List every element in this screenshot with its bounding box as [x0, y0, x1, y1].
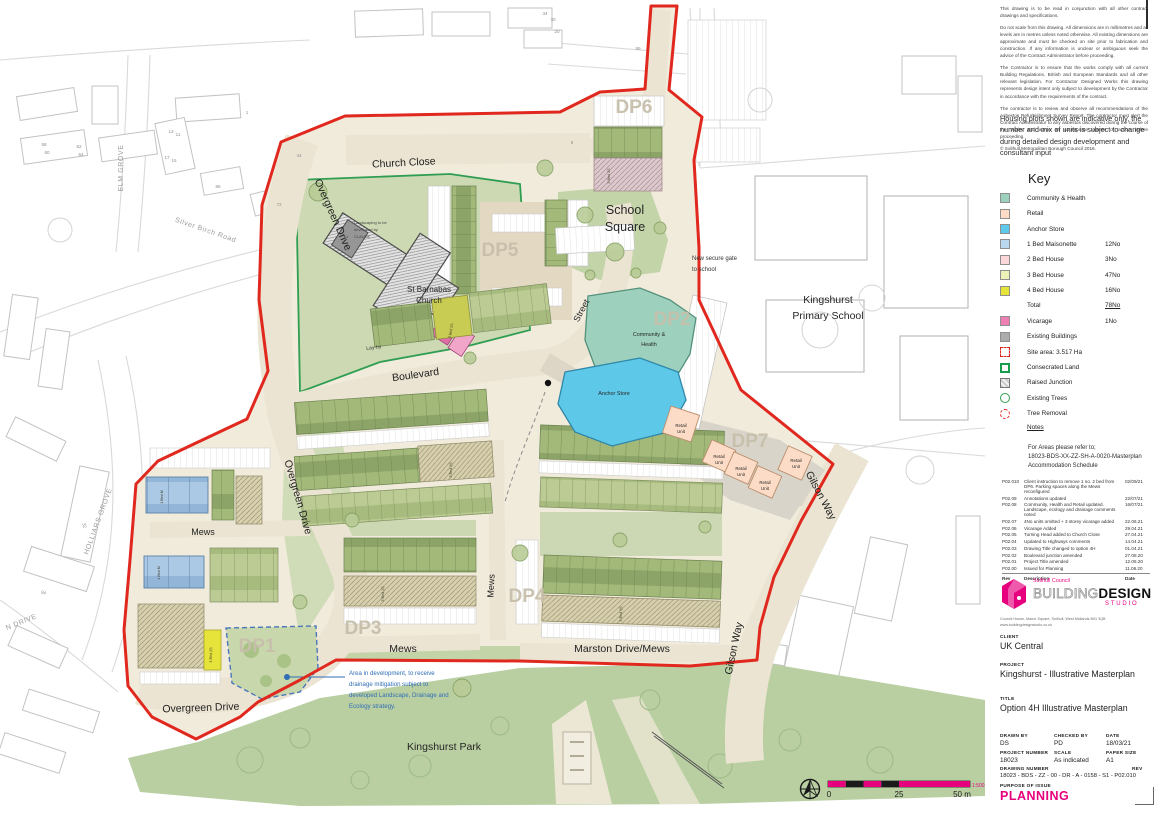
legend-label: Existing Trees	[1027, 395, 1067, 402]
anchor-swatch	[1000, 224, 1010, 234]
legend-label: Existing Buildings	[1027, 333, 1077, 340]
drainage-note-2: drainage mitigation subject to	[349, 681, 429, 688]
bed2-swatch	[1000, 255, 1010, 265]
sheet-corner-mark	[1153, 787, 1154, 805]
site-area-swatch	[1000, 347, 1010, 357]
revision-row: P02.08 Community, Health and Retail upda…	[1002, 502, 1150, 517]
svg-text:11: 11	[176, 132, 181, 137]
legend-count: 16No	[1105, 287, 1120, 294]
logo-building: BUILDING	[1033, 586, 1098, 601]
kingshurst-park-label: Kingshurst Park	[407, 741, 482, 753]
date-value: 18/03/21	[1106, 740, 1131, 747]
legend-row: Anchor Store	[1000, 224, 1152, 235]
central-west-housing	[290, 389, 496, 527]
rev-desc: Drawing Title changed to option 4H	[1024, 546, 1122, 551]
rev-id: P02.07	[1002, 519, 1021, 524]
vicarage-swatch	[1000, 316, 1010, 326]
mews-label-2: Mews	[485, 573, 496, 597]
legend-label: Anchor Store	[1027, 226, 1064, 233]
existing-buildings-swatch	[1000, 332, 1010, 342]
consecrated-land-swatch	[1000, 363, 1010, 373]
legend-row: Community & Health	[1000, 193, 1152, 204]
retail-label: Retail	[790, 458, 801, 463]
primary-school-label-1: Kingshurst	[803, 294, 853, 306]
checked-by-label: CHECKED BY	[1054, 733, 1088, 738]
legend-label: 2 Bed House	[1027, 256, 1064, 263]
rev-desc: Annotations updated	[1024, 496, 1122, 501]
rev-desc: Boulevard junction amended	[1024, 553, 1122, 558]
legend-label: Site area: 3.517 Ha	[1027, 349, 1082, 356]
svg-text:6: 6	[571, 140, 574, 145]
playground	[563, 732, 591, 784]
scale-ratio: 1:500	[972, 783, 985, 789]
checked-by-value: PD	[1054, 740, 1063, 747]
tree-removal-swatch	[1000, 409, 1010, 419]
revision-row: P02.07 4No units omitted + 3 storey vica…	[1002, 519, 1150, 524]
legend-count: 12No	[1105, 241, 1120, 248]
legend-row: 3 Bed House 47No	[1000, 270, 1152, 281]
legend-row: Vicarage 1No	[1000, 316, 1152, 327]
landscaping-note-1: Landscaping to be	[354, 220, 387, 225]
context-parking	[688, 20, 766, 162]
rev-desc: Vicarage Added	[1024, 526, 1122, 531]
logo-council-text: Solihull Council	[1033, 578, 1070, 584]
legend-count: 47No	[1105, 272, 1120, 279]
legend-label: 4 Bed House	[1027, 287, 1064, 294]
dp7-label: DP7	[732, 431, 769, 452]
plot-type-label: 1 Bed M	[157, 566, 161, 580]
maisonette-block-1	[146, 477, 208, 513]
svg-text:13: 13	[168, 129, 174, 134]
legend-label: Vicarage	[1027, 318, 1052, 325]
bed3-swatch	[1000, 270, 1010, 280]
paper-size-label: PAPER SIZE	[1106, 750, 1137, 755]
rev-id: P02.01	[1002, 559, 1021, 564]
rev-date: 16/07/21	[1125, 502, 1152, 517]
revision-row: P02.02 Boulevard junction amended 27.08.…	[1002, 553, 1150, 558]
drawn-by-value: DS	[1000, 740, 1009, 747]
revision-row: P02.01 Project Title amended 12.06.20	[1002, 559, 1150, 564]
rev-date: 11.06.20	[1125, 566, 1152, 571]
rev-date: 22.06.21	[1125, 519, 1152, 524]
rev-id: P02.010	[1002, 479, 1021, 494]
retail-label: Retail	[713, 454, 724, 459]
retail-label: Retail	[759, 480, 770, 485]
bds-logo-icon	[1000, 578, 1028, 612]
rev-desc: Community, Health and Retail updated. La…	[1024, 502, 1122, 517]
rev-header-date: Date	[1125, 576, 1152, 581]
title-block-panel: This drawing is to be read in conjunctio…	[992, 0, 1158, 820]
existing-trees-swatch	[1000, 393, 1010, 403]
scale-end: 50 m	[953, 790, 971, 799]
revision-row: P02.09 Annotations updated 22/07/21	[1002, 496, 1150, 501]
plot-type-label: 3 Bed 2S	[619, 606, 624, 622]
areas-ref-line: 18023-BDS-XX-ZZ-SH-A-0020-Masterplan	[1028, 453, 1153, 462]
mews-label-3: Mews	[389, 643, 416, 655]
drawing-number-value: 18023 - BDS - ZZ - 00 - DR - A - 0158 - …	[1000, 773, 1136, 779]
dp6-label: DP6	[616, 97, 653, 118]
website-line: www.buildingdesignstudio.co.uk	[1000, 623, 1106, 629]
rev-desc: Client instruction to remove 1 no. 2 bed…	[1024, 479, 1122, 494]
drainage-note-3: developed Landscape, Drainage and	[349, 692, 449, 699]
svg-text:17: 17	[164, 155, 170, 160]
legend-row: Existing Trees	[1000, 393, 1152, 404]
raised-junction-marker	[545, 380, 551, 386]
masterplan-map: DP1 DP2 DP3 DP4 DP5 DP6 DP7 ELM GROVE Si…	[0, 0, 985, 820]
title-label: TITLE	[1000, 696, 1015, 701]
total-label: Total	[1000, 302, 1041, 309]
project-label: PROJECT	[1000, 662, 1024, 667]
project-number-label: PROJECT NUMBER	[1000, 750, 1048, 755]
bed4-swatch	[1000, 286, 1010, 296]
maisonette-block-2	[144, 556, 204, 588]
community-label-1: Community &	[633, 332, 666, 338]
anchor-store-label: Anchor Store	[598, 391, 629, 397]
rev-id: P02.06	[1002, 526, 1021, 531]
dp4-label: DP4	[509, 586, 546, 607]
legend-label: Retail	[1027, 210, 1043, 217]
school-square-label-2: Square	[605, 220, 645, 234]
svg-text:1: 1	[246, 110, 249, 115]
legend-label: 1 Bed Maisonette	[1027, 241, 1077, 248]
elm-grove-label: ELM GROVE	[118, 144, 125, 191]
rev-date: 29.04.21	[1125, 526, 1152, 531]
rev-date: 14.04.21	[1125, 539, 1152, 544]
dp5-label: DP5	[482, 240, 519, 261]
svg-text:58: 58	[41, 142, 47, 147]
purpose-label: PURPOSE OF ISSUE	[1000, 783, 1051, 788]
note-paragraph: The Contractor is to ensure that the wor…	[1000, 64, 1148, 99]
svg-text:34: 34	[542, 11, 548, 16]
primary-school-label-2: Primary School	[792, 310, 863, 322]
plot-type-label: 3 Bed 2S	[607, 168, 611, 184]
key-title: Key	[1028, 171, 1050, 186]
rev-desc: 4No units omitted + 3 storey vicarage ad…	[1024, 519, 1122, 524]
housing-indicative-note: Housing plots shown are indicative only,…	[1000, 113, 1153, 158]
svg-text:30: 30	[550, 17, 556, 22]
marston-label: Marston Drive/Mews	[574, 643, 670, 655]
project-number-value: 18023	[1000, 757, 1018, 764]
project-value: Kingshurst - Illustrative Masterplan	[1000, 669, 1135, 679]
rev-id: P02.09	[1002, 496, 1021, 501]
rev-date: 27.04.21	[1125, 532, 1152, 537]
legend-label: Tree Removal	[1027, 410, 1067, 417]
plot-type-label: 3 Bed 2S	[381, 586, 386, 602]
rev-date: 01.04.21	[1125, 546, 1152, 551]
revision-table: P02.010 Client instruction to remove 1 n…	[1002, 479, 1150, 583]
legend-count: 3No	[1105, 256, 1117, 263]
retail-label: Retail	[735, 466, 746, 471]
community-swatch	[1000, 193, 1010, 203]
notes-heading: Notes	[1000, 424, 1152, 431]
legend-row: Retail	[1000, 208, 1152, 219]
svg-text:72: 72	[276, 202, 282, 207]
svg-text:20: 20	[554, 29, 560, 34]
title-value: Option 4H Illustrative Masterplan	[1000, 703, 1128, 713]
legend-row: Site area: 3.517 Ha	[1000, 347, 1152, 358]
rev-id: P02.00	[1002, 566, 1021, 571]
church-close-road	[346, 148, 590, 150]
drainage-note-4: Ecology strategy.	[349, 703, 396, 710]
rev-desc: Updated to Highways comments	[1024, 539, 1122, 544]
revision-row: P02.05 Turning Head added to Church Clos…	[1002, 532, 1150, 537]
svg-text:44: 44	[296, 153, 302, 158]
mews-label-1: Mews	[191, 527, 215, 537]
legend-row: Consecrated Land	[1000, 362, 1152, 373]
svg-text:15: 15	[171, 158, 177, 163]
scale-zero: 0	[827, 790, 832, 799]
rev-id: P02.08	[1002, 502, 1021, 517]
logo-design: DESIGN	[1098, 586, 1151, 601]
rev-desc: Turning Head added to Church Close	[1024, 532, 1122, 537]
total-value: 78No	[1105, 302, 1120, 309]
gate-note-1: New secure gate	[692, 256, 738, 262]
legend-label: Raised Junction	[1027, 379, 1072, 386]
revision-row: P02.00 Issued for Planning 11.06.20	[1002, 566, 1150, 571]
revision-row: P02.010 Client instruction to remove 1 n…	[1002, 479, 1150, 494]
plot-type-label: 1 Bed M	[160, 490, 164, 504]
retail-label: Unit	[715, 460, 724, 465]
legend-row: 2 Bed House 3No	[1000, 255, 1152, 266]
legend-label: Community & Health	[1027, 195, 1086, 202]
areas-reference-note: For Areas please refer to; 18023-BDS-XX-…	[1028, 444, 1153, 471]
rev-label: REV	[1132, 766, 1143, 771]
client-value: UK Central	[1000, 641, 1043, 651]
client-label: CLIENT	[1000, 634, 1019, 639]
retail-label: Unit	[677, 429, 686, 434]
legend-row: Raised Junction	[1000, 378, 1152, 389]
church-label-1: St Barnabas	[407, 285, 451, 294]
raised-junction-swatch	[1000, 378, 1010, 388]
rev-id: P02.04	[1002, 539, 1021, 544]
rev-id: P02.05	[1002, 532, 1021, 537]
studio-address: Council House, Manor Square, Solihull, W…	[1000, 617, 1106, 629]
rev-id: P02.02	[1002, 553, 1021, 558]
scale-label: SCALE	[1054, 750, 1071, 755]
legend-count: 1No	[1105, 318, 1117, 325]
note-paragraph: Do not scale from this drawing. All dime…	[1000, 24, 1148, 59]
landscaping-note-3: CLAUDE	[354, 234, 371, 239]
school-square-label-1: School	[606, 203, 644, 217]
retail-label: Unit	[792, 464, 801, 469]
rev-date: 02/09/21	[1125, 479, 1152, 494]
paper-size-value: A1	[1106, 757, 1114, 764]
revision-row: P02.04 Updated to Highways comments 14.0…	[1002, 539, 1150, 544]
scale-value: As indicated	[1054, 757, 1089, 764]
dp3-label: DP3	[345, 618, 382, 639]
north-arrow	[801, 780, 820, 799]
rev-date: 12.06.20	[1125, 559, 1152, 564]
svg-text:60: 60	[44, 150, 50, 155]
legend: Community & Health Retail Anchor Store 1…	[1000, 193, 1152, 431]
retail-label: Unit	[761, 486, 770, 491]
revision-row: P02.03 Drawing Title changed to option 4…	[1002, 546, 1150, 551]
landscaping-note-2: developed by	[354, 227, 378, 232]
rev-desc: Project Title amended	[1024, 559, 1122, 564]
community-label-2: Health	[641, 342, 657, 348]
dp2-label: DP2	[654, 309, 691, 330]
legend-label: 3 Bed House	[1027, 272, 1064, 279]
svg-text:94: 94	[40, 589, 47, 595]
plot-type-label: 3 Bed 2S	[449, 462, 454, 478]
dp1-label: DP1	[239, 636, 276, 657]
rev-id: P02.03	[1002, 546, 1021, 551]
legend-row: 4 Bed House 16No	[1000, 285, 1152, 296]
church-label-2: Church	[416, 296, 442, 305]
plot-type-label: 4 Bed 2S	[209, 647, 214, 663]
legend-label: Consecrated Land	[1027, 364, 1079, 371]
revision-row: P02.06 Vicarage Added 29.04.21	[1002, 526, 1150, 531]
legend-row: 1 Bed Maisonette 12No	[1000, 239, 1152, 250]
sheet-trim-mark	[1146, 0, 1148, 29]
legend-row: Tree Removal	[1000, 408, 1152, 419]
areas-ref-line: Accommodation Schedule	[1028, 462, 1153, 471]
drawing-number-label: DRAWING NUMBER	[1000, 766, 1049, 771]
scale-mid: 25	[895, 790, 904, 799]
svg-text:64: 64	[78, 152, 84, 157]
gate-note-2: to school	[692, 267, 716, 273]
drawing-sheet: DP1 DP2 DP3 DP4 DP5 DP6 DP7 ELM GROVE Si…	[0, 0, 1158, 820]
note-paragraph: This drawing is to be read in conjunctio…	[1000, 5, 1148, 19]
drainage-note-1: Area in development, to receive	[349, 670, 435, 677]
date-label: DATE	[1106, 733, 1120, 738]
silver-birch-label: Silver Birch Road	[174, 217, 237, 245]
drawn-by-label: DRAWN BY	[1000, 733, 1028, 738]
rev-desc: Issued for Planning	[1024, 566, 1122, 571]
legend-row: Existing Buildings	[1000, 332, 1152, 343]
areas-ref-line: For Areas please refer to;	[1028, 444, 1153, 453]
retail-swatch	[1000, 209, 1010, 219]
sheet-corner-mark	[1135, 804, 1154, 805]
svg-text:99: 99	[635, 46, 641, 51]
svg-text:62: 62	[76, 144, 82, 149]
rev-date: 27.08.20	[1125, 553, 1152, 558]
logo-studio: STUDIO	[1105, 601, 1138, 607]
purpose-value: PLANNING	[1000, 789, 1069, 803]
retail-label: Retail	[675, 423, 686, 428]
rev-date: 22/07/21	[1125, 496, 1152, 501]
svg-text:86: 86	[215, 184, 221, 189]
bed1-swatch	[1000, 239, 1010, 249]
legend-total-row: Total 78No	[1000, 301, 1152, 312]
retail-label: Unit	[737, 472, 746, 477]
